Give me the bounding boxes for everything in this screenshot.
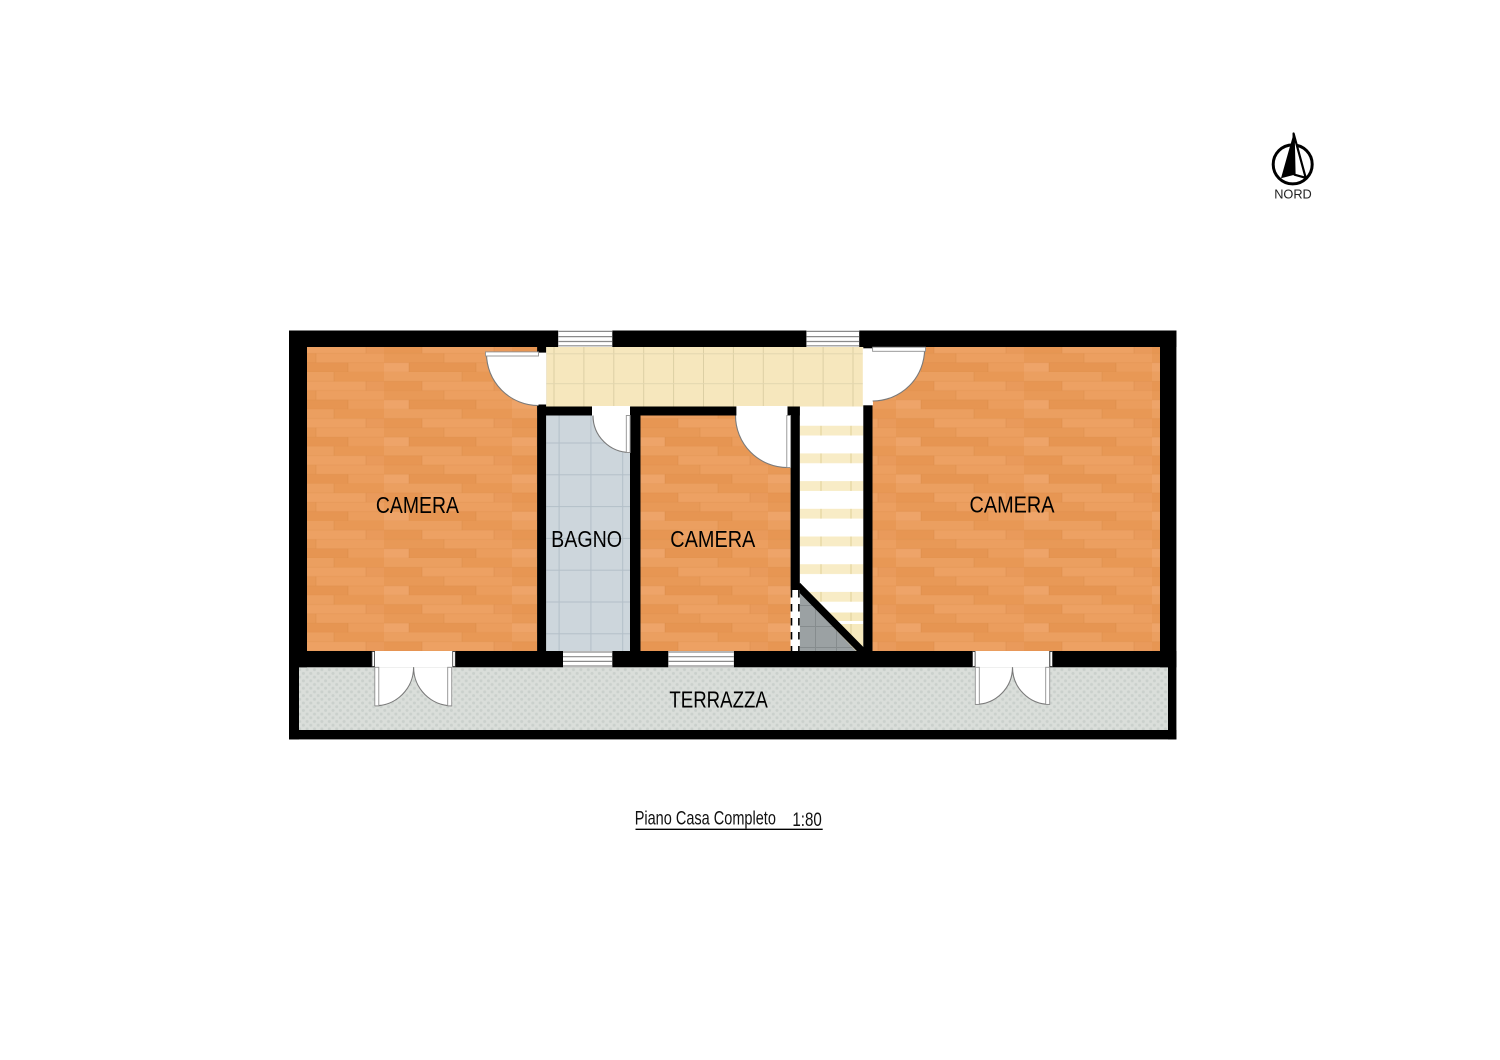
- svg-text:TERRAZZA: TERRAZZA: [669, 687, 768, 713]
- svg-text:CAMERA: CAMERA: [376, 492, 460, 518]
- svg-text:BAGNO: BAGNO: [551, 526, 622, 552]
- svg-text:NORD: NORD: [1274, 187, 1312, 202]
- svg-text:1:80: 1:80: [792, 809, 822, 831]
- svg-text:CAMERA: CAMERA: [970, 492, 1056, 518]
- svg-text:CAMERA: CAMERA: [670, 526, 756, 552]
- svg-text:Piano Casa Completo: Piano Casa Completo: [635, 808, 776, 830]
